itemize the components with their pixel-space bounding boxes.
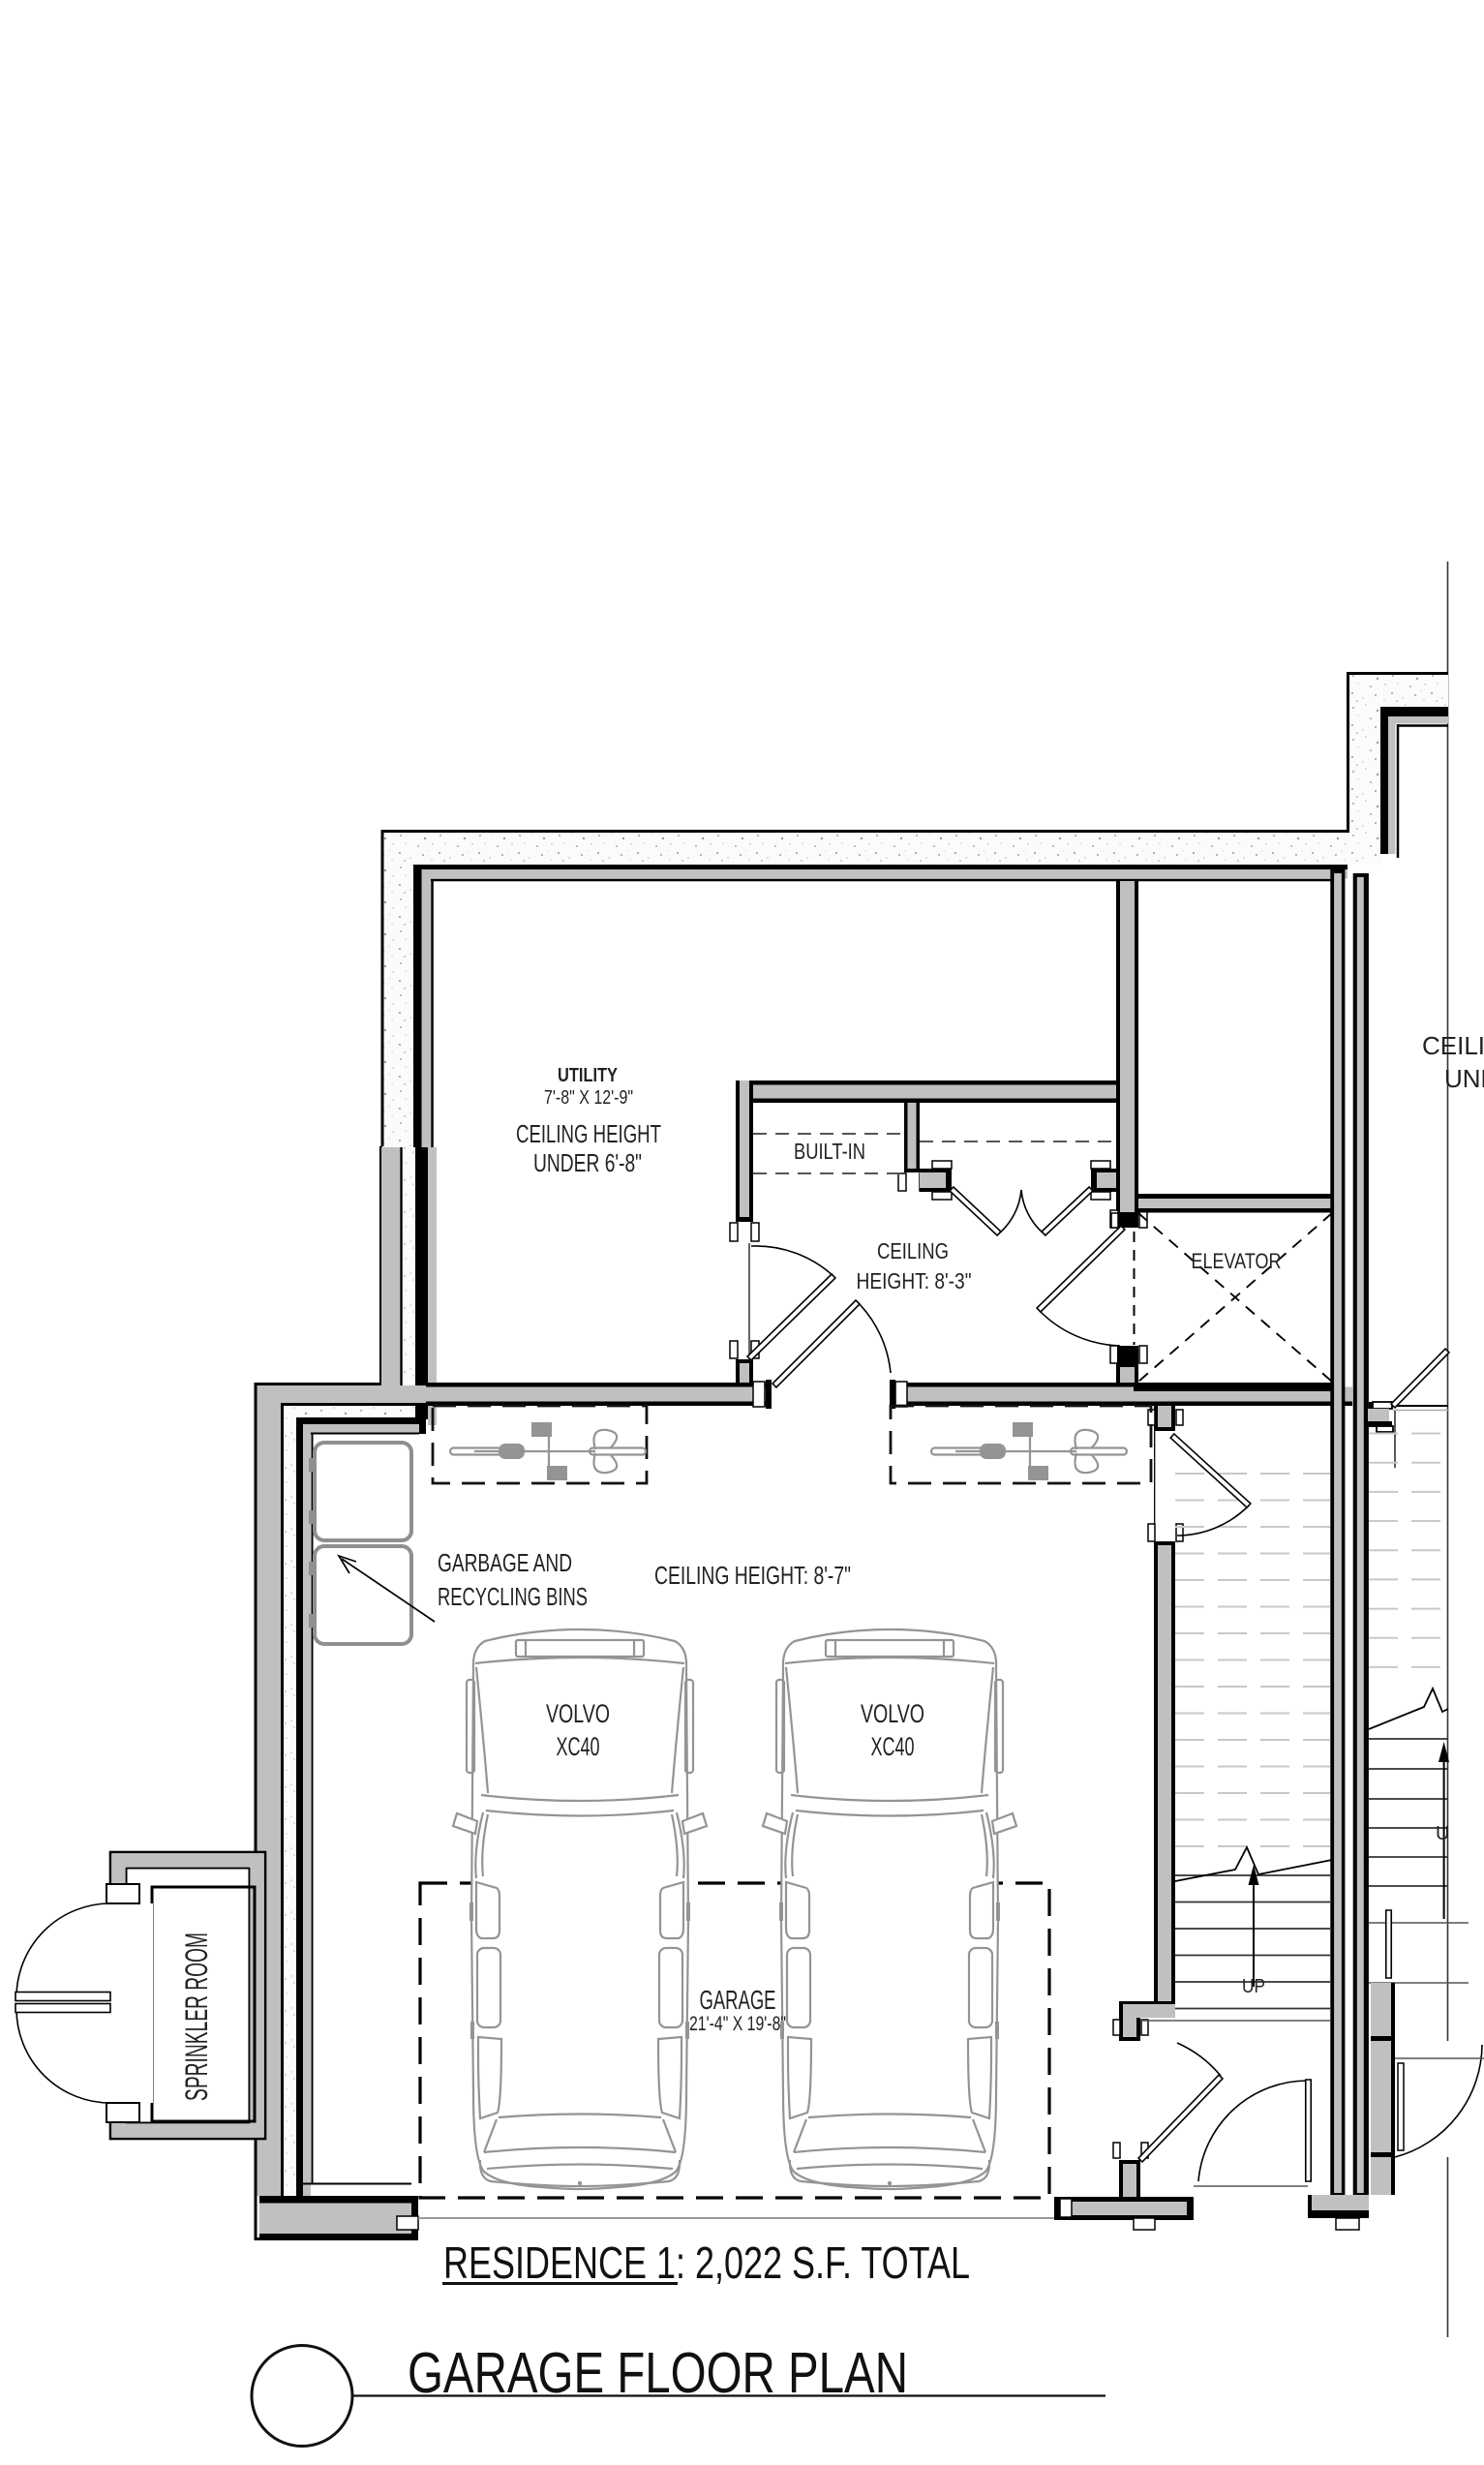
svg-text:CEILING: CEILING bbox=[877, 1238, 949, 1263]
svg-text:U: U bbox=[1436, 1823, 1449, 1844]
svg-text:UP: UP bbox=[1242, 1976, 1265, 1997]
svg-text:RESIDENCE 1: 2,022 S.F. TOTAL: RESIDENCE 1: 2,022 S.F. TOTAL bbox=[443, 2237, 970, 2288]
svg-text:SPRINKLER ROOM: SPRINKLER ROOM bbox=[179, 1932, 214, 2101]
svg-text:HEIGHT: 8'-3": HEIGHT: 8'-3" bbox=[857, 1268, 972, 1293]
svg-text:XC40: XC40 bbox=[557, 1732, 600, 1761]
svg-text:21'-4" X 19'-8": 21'-4" X 19'-8" bbox=[689, 2013, 786, 2035]
svg-text:CEILING HEIGHT: 8'-7": CEILING HEIGHT: 8'-7" bbox=[654, 1561, 851, 1590]
svg-text:GARBAGE AND: GARBAGE AND bbox=[438, 1548, 572, 1577]
svg-text:VOLVO: VOLVO bbox=[861, 1699, 924, 1728]
svg-text:XC40: XC40 bbox=[871, 1732, 915, 1761]
svg-text:CEILING HEIGHT: CEILING HEIGHT bbox=[1422, 1031, 1484, 1060]
svg-text:CEILING HEIGHT: CEILING HEIGHT bbox=[516, 1119, 661, 1148]
svg-text:7'-8" X 12'-9": 7'-8" X 12'-9" bbox=[544, 1087, 633, 1109]
svg-text:UTILITY: UTILITY bbox=[558, 1065, 619, 1086]
svg-text:BUILT-IN: BUILT-IN bbox=[794, 1139, 865, 1164]
svg-text:RECYCLING BINS: RECYCLING BINS bbox=[438, 1582, 588, 1611]
svg-text:VOLVO: VOLVO bbox=[546, 1699, 610, 1728]
svg-text:GARAGE: GARAGE bbox=[700, 1985, 776, 2015]
svg-text:UNDER 6'-8": UNDER 6'-8" bbox=[533, 1148, 642, 1177]
svg-text:UNDER 6'-8": UNDER 6'-8" bbox=[1444, 1064, 1484, 1093]
svg-text:ELEVATOR: ELEVATOR bbox=[1192, 1249, 1282, 1273]
